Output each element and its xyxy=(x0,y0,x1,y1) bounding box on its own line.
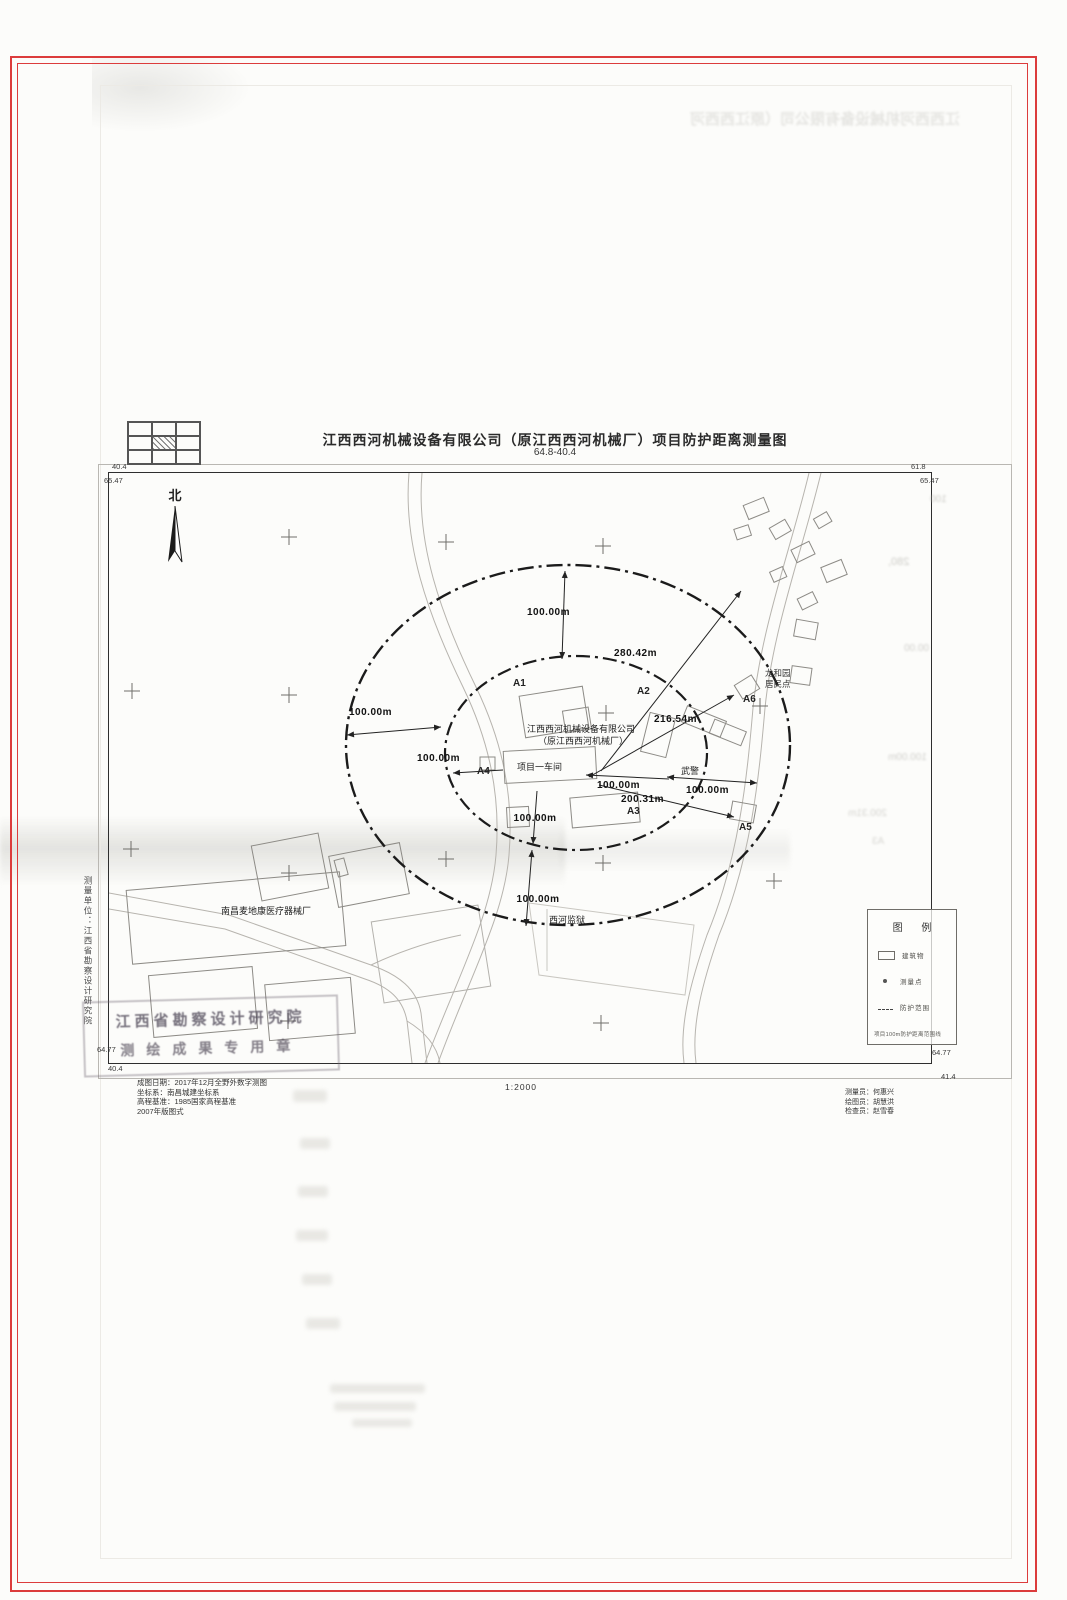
north-label: 北 xyxy=(155,485,195,504)
inspector-line: 检查员：赵雪春 xyxy=(845,1107,894,1117)
dim-label-100m-top: 100.00m xyxy=(527,607,570,618)
bleed-through-artifact xyxy=(352,1419,412,1427)
roads xyxy=(109,473,821,1063)
legend-item-label: 防护范围 xyxy=(900,1002,930,1012)
bleed-through-title: 江西西河机械设备有限公司（原江西西河机械厂）项目防护距离测量图 xyxy=(690,108,960,129)
point-label-a6: A6 xyxy=(743,694,756,705)
grid-plus-marks xyxy=(123,529,782,1031)
stamp-org-name: 江西省勘察设计研究院 xyxy=(84,1004,336,1032)
bleed-through-artifact xyxy=(302,1274,332,1285)
crew-block: 测量员：何惠兴 绘图员：胡慧洪 检查员：赵雪春 xyxy=(845,1088,894,1117)
legend-title: 图 例 xyxy=(868,919,956,934)
elevation-datum-line: 高程基准：1985国家高程基准 xyxy=(137,1097,267,1107)
draftsman-line: 绘图员：胡慧洪 xyxy=(845,1098,894,1108)
bleed-through-text: A3 xyxy=(872,836,884,847)
point-label-a4: A4 xyxy=(477,766,490,777)
site-workshop-label: 项目一车间 xyxy=(517,760,562,773)
dim-label-100m-bottom-2: 100.00m xyxy=(517,894,560,905)
map-info-block: 成图日期：2017年12月全野外数字测图 坐标系：南昌城建坐标系 高程基准：19… xyxy=(137,1078,267,1116)
corner-coord-tr-outer: 61.8 xyxy=(911,462,926,471)
bleed-through-text: 100 xyxy=(930,494,947,505)
corner-coord-tl-outer: 40.4 xyxy=(112,462,127,471)
place-police-label: 武警 xyxy=(681,764,699,777)
bleed-through-text: 200.31m xyxy=(848,808,887,819)
place-residential-label-line2: 居民点 xyxy=(765,678,791,690)
corner-coord-br-inner: 64.77 xyxy=(932,1048,951,1057)
bleed-through-artifact xyxy=(334,1402,416,1411)
site-company-name-line2: （原江西西河机械厂） xyxy=(538,734,628,747)
legend-point-symbol xyxy=(878,977,893,986)
bleed-through-artifact xyxy=(330,1384,425,1393)
surveyor-line: 测量员：何惠兴 xyxy=(845,1088,894,1098)
stamp-seal-text: 测绘成果专用章 xyxy=(85,1034,337,1061)
bleed-through-artifact xyxy=(296,1230,328,1241)
corner-coord-br-outer: 41.4 xyxy=(941,1072,956,1081)
point-label-a2: A2 xyxy=(637,686,650,697)
bleed-through-text: 100.00m xyxy=(888,752,927,763)
legend-item-label: 测量点 xyxy=(900,976,923,986)
legend-boundary-symbol xyxy=(878,1009,893,1010)
dim-label-100m-workshop-left: 100.00m xyxy=(417,753,460,764)
map-scale: 1:2000 xyxy=(471,1082,571,1092)
north-arrow-icon xyxy=(155,504,195,566)
legend-item-label: 建筑物 xyxy=(902,950,925,960)
dim-label-100m-police: 100.00m xyxy=(686,785,729,796)
legend-building-symbol xyxy=(878,951,895,960)
place-prison-label: 西河监狱 xyxy=(549,913,585,926)
map-style-line: 2007年版图式 xyxy=(137,1107,267,1117)
sheet-number: 64.8-40.4 xyxy=(105,447,1005,458)
survey-results-stamp: 江西省勘察设计研究院 测绘成果专用章 xyxy=(82,994,340,1077)
dim-label-216m: 216.54m xyxy=(654,714,697,725)
map-date-line: 成图日期：2017年12月全野外数字测图 xyxy=(137,1078,267,1088)
dim-label-100m-workshop-right: 100.00m xyxy=(597,780,640,791)
map-frame: 北 100.00m 280.42m 216.54m 100.00m 100.00… xyxy=(108,472,932,1064)
legend-note: 项目100m防护距离范围线 xyxy=(874,1030,952,1038)
bleed-through-artifact xyxy=(293,1090,327,1102)
coordinate-system-line: 坐标系：南昌城建坐标系 xyxy=(137,1088,267,1098)
scanned-map-page: 江西西河机械设备有限公司（原江西西河机械厂）项目防护距离测量图 江西西河机械设备… xyxy=(0,0,1067,1600)
bleed-through-artifact xyxy=(298,1186,328,1197)
north-arrow: 北 xyxy=(155,485,195,571)
point-label-a1: A1 xyxy=(513,678,526,689)
dim-label-100m-left: 100.00m xyxy=(349,707,392,718)
dim-label-200m: 200.31m xyxy=(621,794,664,805)
dim-label-280m: 280.42m xyxy=(614,648,657,659)
bleed-through-text: 280, xyxy=(888,556,909,568)
dim-label-100m-bottom-1: 100.00m xyxy=(514,813,557,824)
bleed-through-artifact xyxy=(306,1318,340,1329)
point-label-a5: A5 xyxy=(739,822,752,833)
point-label-a3: A3 xyxy=(627,806,640,817)
bleed-through-text: 00.00 xyxy=(904,643,929,654)
bleed-through-artifact xyxy=(300,1138,330,1149)
legend-box: 图 例 建筑物 测量点 防护范围 项目100m防护距离范围线 xyxy=(867,909,957,1045)
place-medical-factory-label: 南昌麦地康医疗器械厂 xyxy=(221,904,311,917)
